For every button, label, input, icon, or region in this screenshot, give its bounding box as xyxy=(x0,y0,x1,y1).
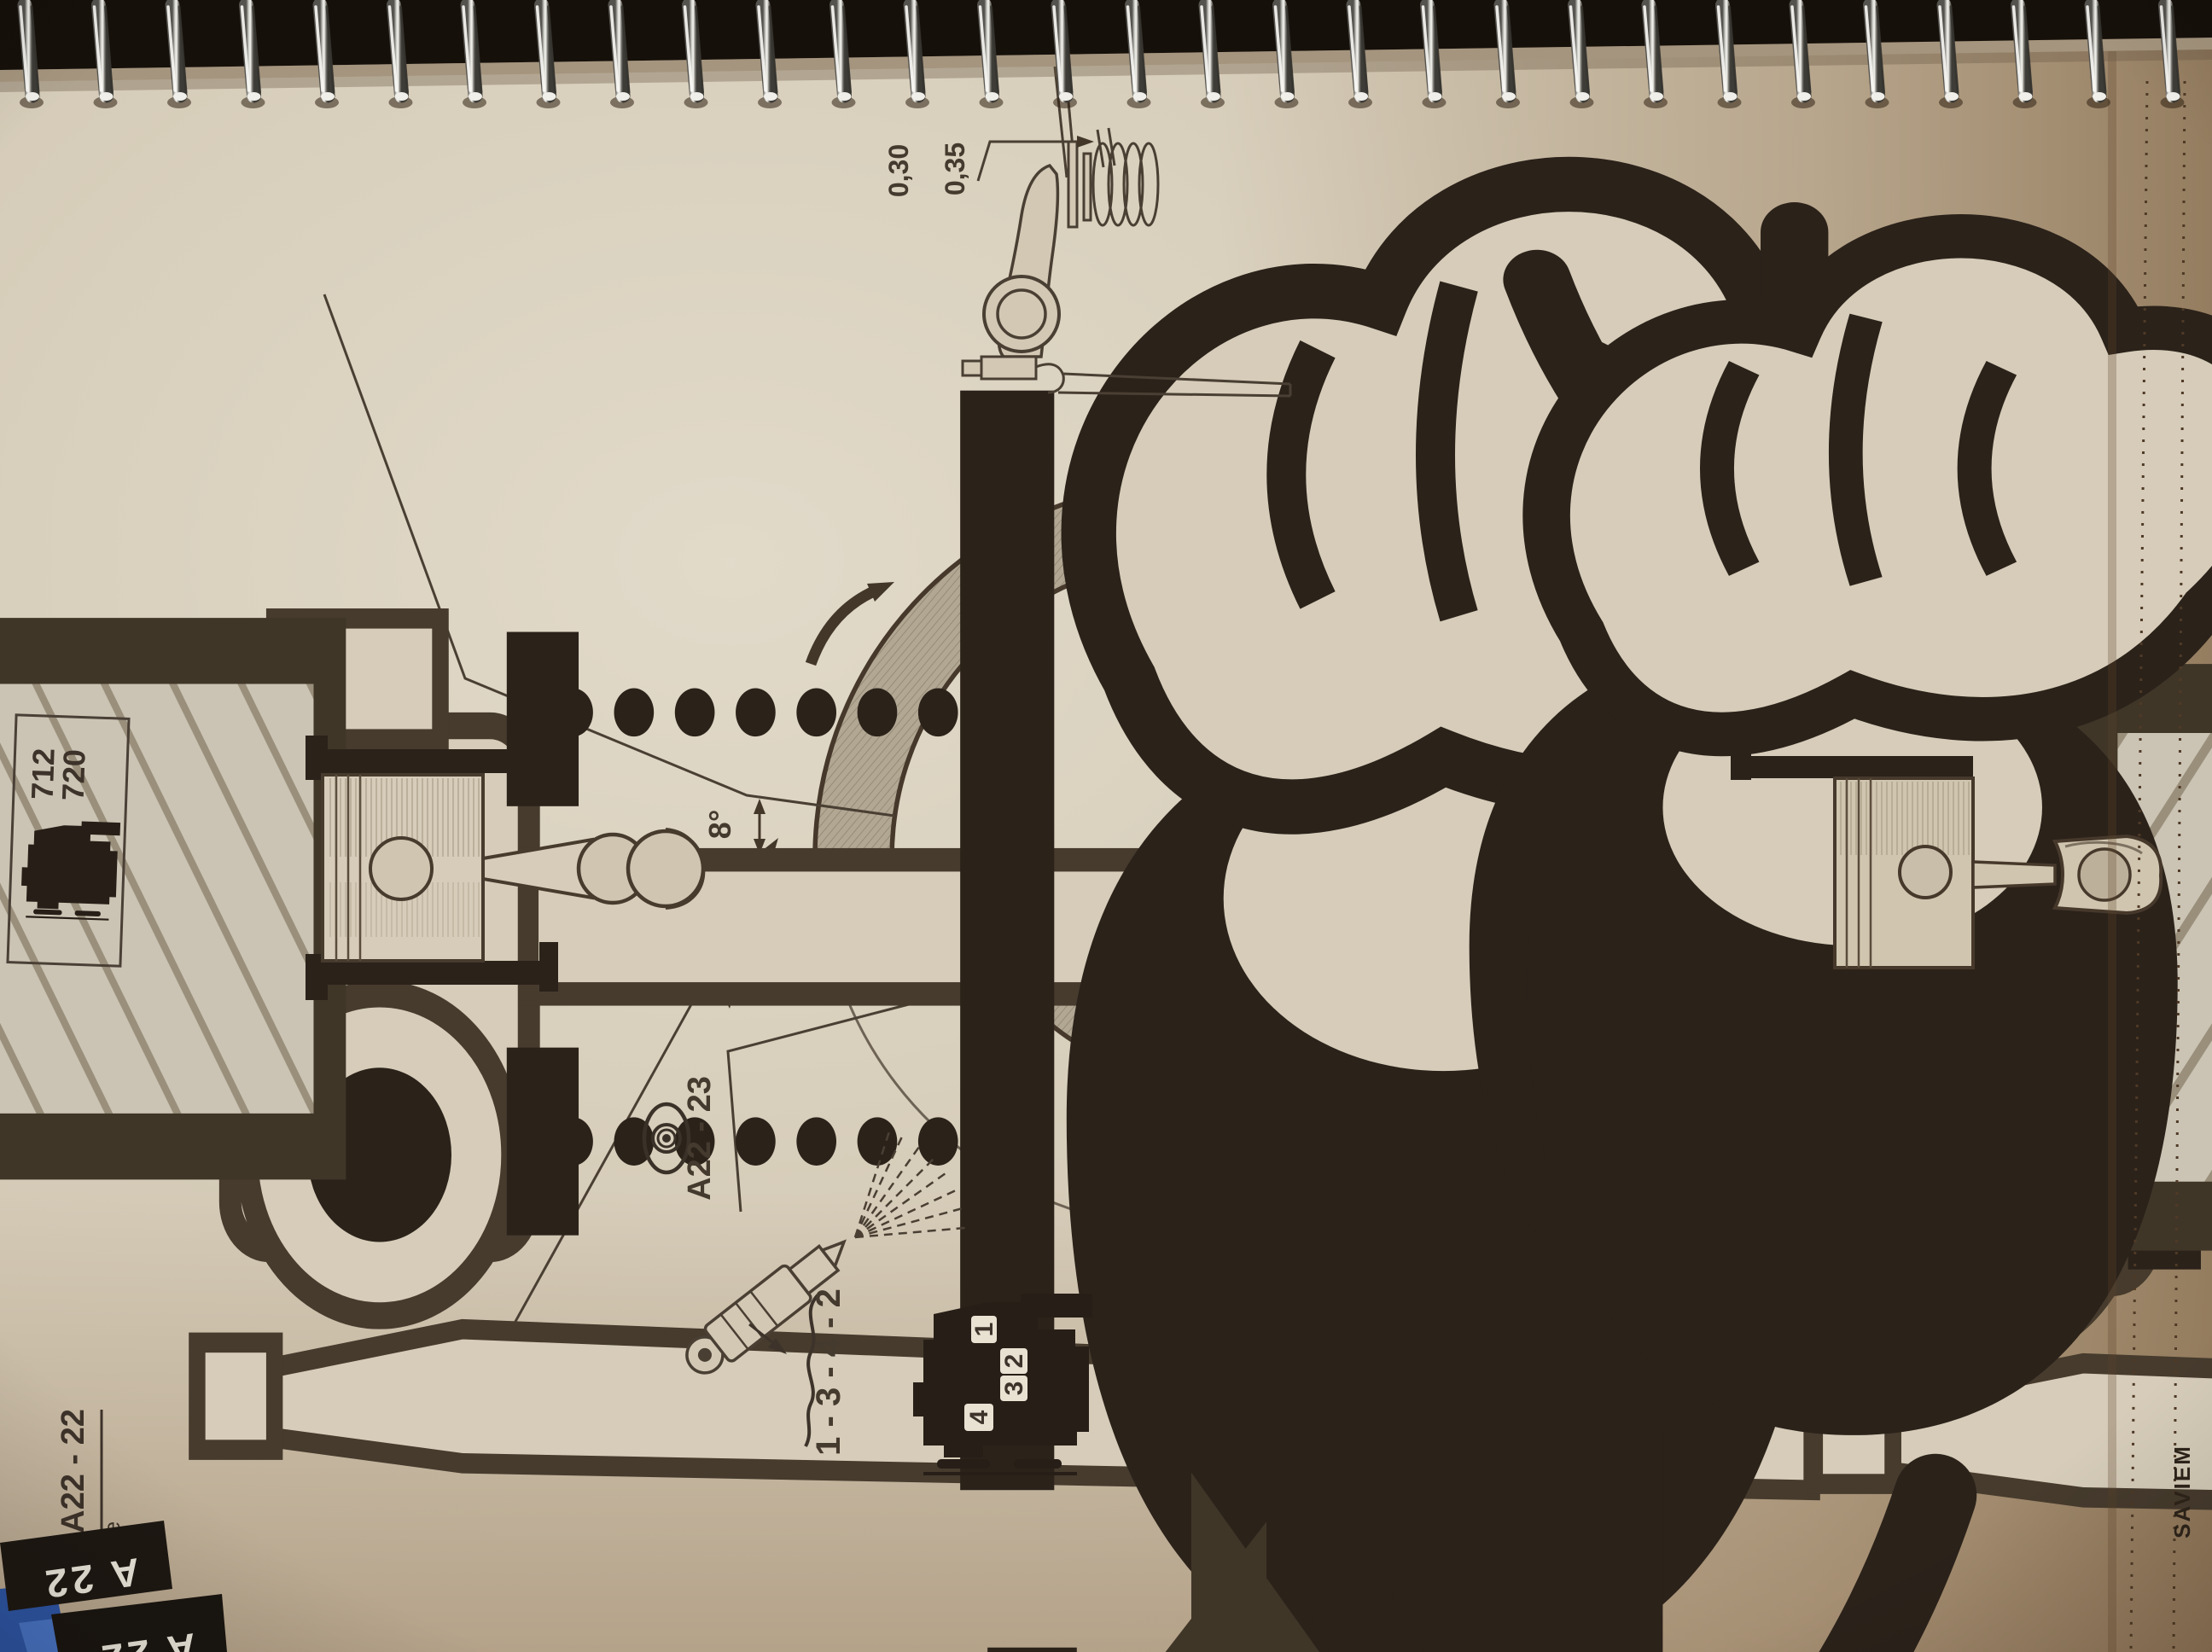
photo-vignette xyxy=(0,0,2212,1652)
manual-page: 8° 12° α° 48° 44° xyxy=(0,0,2212,1652)
workshop-manual-photo: 8° 12° α° 48° 44° xyxy=(0,0,2212,1652)
